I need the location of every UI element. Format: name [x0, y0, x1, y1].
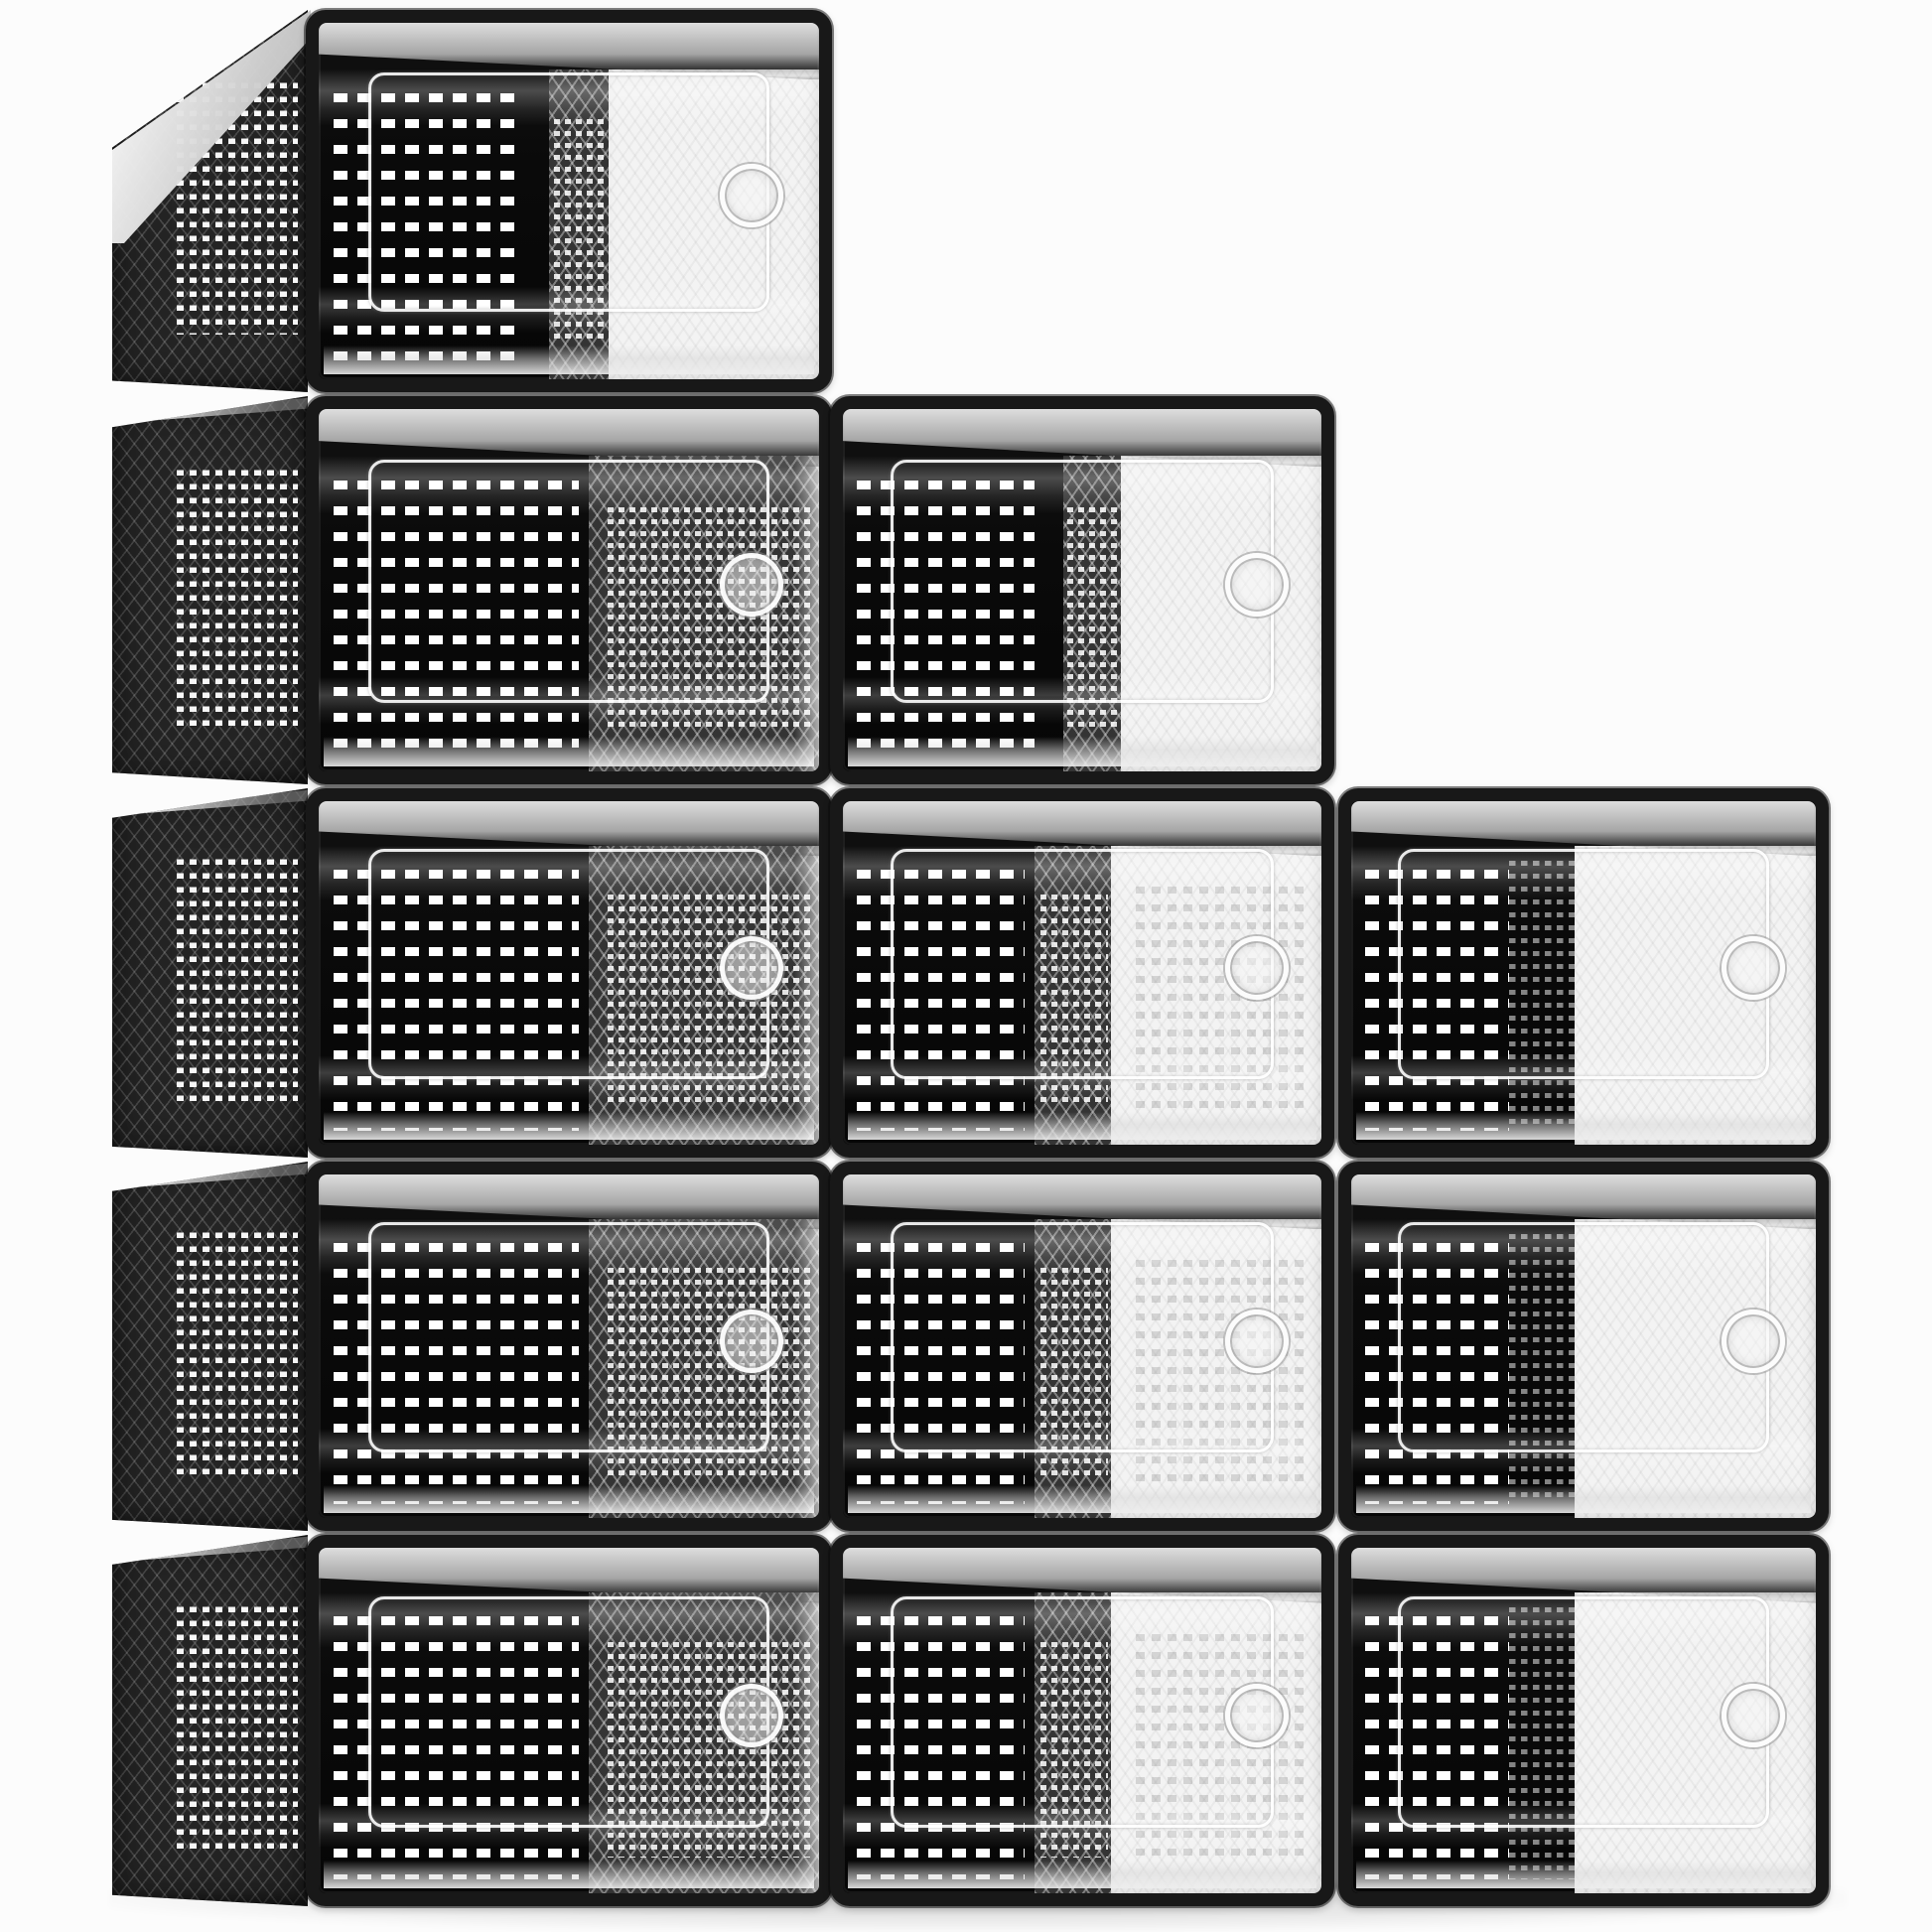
shoe-box [1338, 788, 1829, 1158]
box-floor [1356, 1485, 1812, 1513]
door-outline [1398, 1222, 1769, 1452]
finger-hole [1722, 1684, 1785, 1747]
shoe-box [830, 1162, 1334, 1531]
box-floor [848, 1861, 1316, 1888]
edge-highlight [794, 456, 819, 771]
door-outline [1398, 849, 1769, 1079]
finger-hole [1225, 1310, 1289, 1373]
side-panel [112, 1535, 308, 1906]
door-outline [368, 72, 768, 312]
box-front [319, 1548, 819, 1893]
shoe-box [306, 396, 832, 784]
box-front [319, 1174, 819, 1518]
box-floor [1356, 1861, 1812, 1888]
finger-hole [720, 553, 783, 617]
side-panel-vent-grid [177, 1598, 298, 1851]
box-front [1351, 1548, 1816, 1893]
shoe-box [306, 1535, 832, 1906]
shoe-box [1338, 1535, 1829, 1906]
shoe-box [1338, 1162, 1829, 1531]
side-panel-vent-grid [177, 851, 298, 1102]
edge-highlight [794, 1219, 819, 1518]
finger-hole [720, 936, 783, 1000]
side-panel-vent-grid [177, 1224, 298, 1475]
box-front [843, 1174, 1321, 1518]
shoe-box [306, 10, 832, 392]
box-floor [1356, 1112, 1812, 1140]
finger-hole [1225, 936, 1289, 1000]
shoe-box [830, 396, 1334, 784]
door-outline [1398, 1596, 1769, 1828]
lid-band [319, 801, 819, 856]
finger-hole [1722, 1310, 1785, 1373]
box-front [319, 409, 819, 771]
door-outline [891, 849, 1274, 1079]
door-outline [368, 849, 768, 1079]
door-outline [368, 460, 768, 703]
finger-hole [1722, 936, 1785, 1000]
box-floor [324, 1861, 814, 1888]
box-front [843, 1548, 1321, 1893]
box-floor [848, 1485, 1316, 1513]
side-panel-vent-grid [177, 462, 298, 726]
finger-hole [720, 1310, 783, 1373]
edge-highlight [794, 1592, 819, 1893]
side-panel [112, 788, 308, 1158]
finger-hole [1225, 553, 1289, 617]
box-front [843, 801, 1321, 1145]
side-panel [112, 396, 308, 784]
box-floor [324, 345, 814, 374]
lid-band [319, 409, 819, 467]
side-panel [112, 1162, 308, 1531]
shoe-box [306, 788, 832, 1158]
edge-highlight [794, 846, 819, 1145]
box-floor [848, 737, 1316, 765]
box-floor [324, 1485, 814, 1513]
door-outline [368, 1222, 768, 1452]
shoe-box [830, 788, 1334, 1158]
box-front [1351, 1174, 1816, 1518]
box-front [319, 801, 819, 1145]
box-front [843, 409, 1321, 771]
finger-hole [720, 1684, 783, 1747]
shoe-box [830, 1535, 1334, 1906]
lid-band [319, 1548, 819, 1603]
finger-hole [720, 164, 783, 227]
shoe-box [306, 1162, 832, 1531]
lid-band [319, 1174, 819, 1229]
box-front [1351, 801, 1816, 1145]
door-outline [891, 1596, 1274, 1828]
box-floor [324, 1112, 814, 1140]
stage [0, 0, 1932, 1932]
box-front [319, 23, 819, 379]
finger-hole [1225, 1684, 1289, 1747]
box-floor [848, 1112, 1316, 1140]
box-floor [324, 737, 814, 765]
door-outline [891, 1222, 1274, 1452]
door-outline [891, 460, 1274, 703]
door-outline [368, 1596, 768, 1828]
